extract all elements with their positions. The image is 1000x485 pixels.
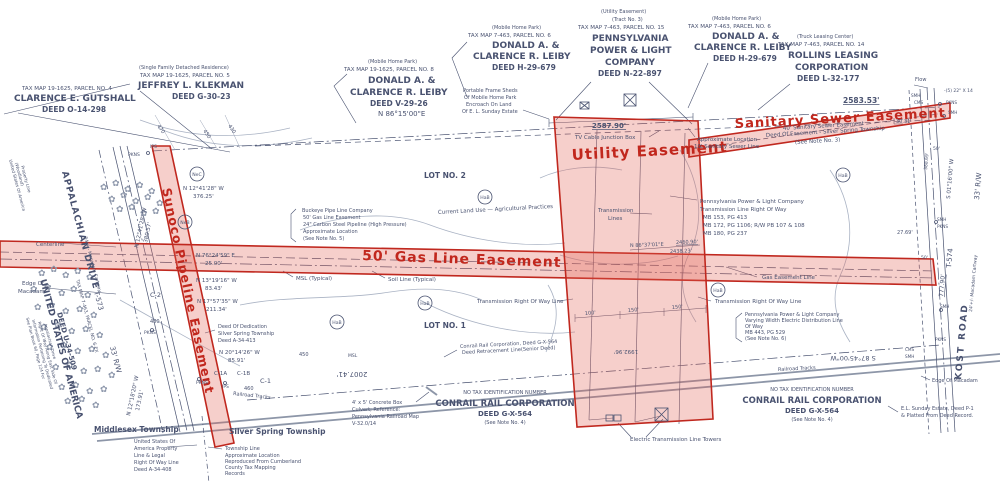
map-label: PKNS	[935, 337, 946, 342]
map-label: 4' x 5' Concrete Box	[352, 400, 402, 406]
map-label: Deed Of Dedication	[218, 324, 267, 330]
map-label: Of E. L. Sunday Estate	[462, 109, 518, 115]
tree-symbol-icon: ✿	[62, 271, 70, 281]
map-label: 33' R/W	[108, 345, 123, 373]
map-label: Right Of Way Line	[134, 460, 179, 466]
map-label: DONALD A. &	[368, 76, 436, 86]
map-label: E.L. Sunday Estate, Deed P-1	[901, 406, 974, 412]
soil-label: HaB	[713, 288, 722, 294]
map-label: PENNSYLVANIA	[592, 34, 669, 44]
map-label: TAX MAP 7-463, PARCEL NO. 15	[577, 25, 665, 31]
map-label: Railroad Tracks	[778, 365, 816, 373]
map-label: TAX MAP 19-1625, PARCEL NO. 4	[21, 86, 112, 92]
map-label: IPS	[222, 384, 229, 390]
map-label: TAX MAP 19-1625, PARCEL NO. 8	[343, 67, 434, 73]
map-label: Township Line	[224, 446, 260, 452]
map-label: CONRAIL RAIL CORPORATION	[742, 396, 881, 406]
map-label: 50'	[921, 255, 928, 261]
map-label: 100'	[585, 310, 596, 317]
map-label: 2587.90'	[592, 122, 626, 130]
tree-symbol-icon: ✿	[58, 289, 66, 299]
township-line	[202, 416, 209, 483]
map-label: 85.91'	[228, 358, 245, 364]
tree-symbol-icon: ✿	[100, 385, 108, 395]
plat-canvas: NeCNeBHaBHaBHaBHaBHaB ✿✿✿✿✿✿✿✿✿✿✿✿✿✿✿✿✿✿…	[0, 0, 1000, 485]
map-label: TAX MAP 7-463, PARCEL NO. 6	[687, 24, 771, 30]
map-label: DONALD A. &	[712, 32, 780, 42]
map-label: Approximate Location	[303, 229, 358, 235]
map-label: 27.69'	[897, 230, 913, 236]
map-label: Macadam	[18, 289, 45, 295]
map-label: MB 153, PG 413	[703, 215, 748, 221]
boundary-lines	[0, 88, 955, 483]
map-label: United States Of	[134, 439, 175, 445]
map-label: (See Note No. 4)	[791, 417, 832, 423]
map-label: MSL (Typical)	[296, 276, 332, 282]
tree-symbol-icon: ✿	[80, 367, 88, 377]
map-label: 450	[201, 129, 211, 140]
map-label: PKNS	[144, 330, 156, 336]
tree-symbol-icon: ✿	[50, 265, 58, 275]
map-label: CLARENCE R. LEIBY	[350, 88, 448, 98]
map-label: CMS	[905, 347, 915, 352]
map-label: IPS	[150, 144, 157, 150]
soil-label: NeC	[192, 172, 201, 178]
map-label: TV Cable Junction Box	[574, 135, 636, 141]
map-label: N 12°41'28" W	[183, 186, 224, 192]
map-label: 2438.23'	[670, 248, 692, 255]
map-label: Silver Spring Township	[229, 427, 326, 436]
map-label: 30.31	[896, 119, 910, 125]
map-label: Middlesex Township	[94, 425, 179, 434]
map-label: Deed A-34-413	[218, 338, 256, 344]
map-label: Culvert; Reference:	[352, 407, 401, 413]
map-label: Portable Frame Sheds	[463, 88, 518, 94]
map-label: ROLLINS LEASING	[788, 51, 878, 61]
map-label: MSL	[348, 353, 358, 359]
map-label: S 01°16'00" W	[946, 158, 956, 199]
map-label: C-1B	[237, 371, 250, 377]
map-label: Silver Spring Township	[218, 331, 274, 337]
map-label: 50'	[933, 146, 940, 152]
map-label: Line & Legal	[134, 453, 165, 459]
tree-symbol-icon: ✿	[112, 179, 120, 189]
map-label: Records	[225, 471, 245, 477]
map-label: NO TAX IDENTIFICATION NUMBER	[463, 390, 547, 396]
map-label: N 76°24'59" E	[196, 253, 235, 259]
map-label: CORPORATION	[795, 63, 868, 73]
tree-symbol-icon: ✿	[120, 191, 128, 201]
map-label: N 20°14'26" W	[219, 350, 260, 356]
map-label: N 86°37'01"E	[630, 242, 664, 249]
tree-symbol-icon: ✿	[144, 193, 152, 203]
tree-symbol-icon: ✿	[34, 303, 42, 313]
map-label: N 13°19'16" W	[196, 278, 237, 284]
map-label: (Mobile Home Park)	[712, 16, 761, 22]
map-label: (See Note No. 5)	[303, 236, 344, 242]
map-label: Pennsylvania Railroad Map	[352, 414, 419, 420]
map-label: Edge Of Macadam	[932, 378, 978, 384]
map-label: Deed A-34-408	[134, 467, 172, 473]
map-label: 777.90'	[938, 274, 947, 298]
map-label: 450	[299, 352, 309, 358]
map-label: DEED G-X-564	[478, 410, 532, 418]
map-label: -(5) 22" X 14	[944, 88, 973, 94]
map-label: SMH	[905, 354, 914, 359]
map-label: C-1	[260, 377, 271, 385]
map-label: 480	[150, 319, 160, 325]
map-label: KOST ROAD	[954, 303, 971, 380]
map-label: DEED G-X-564	[785, 407, 839, 415]
map-label: Transmission Line Right Of Way	[699, 207, 787, 213]
map-label: DEED G-30-23	[172, 92, 231, 101]
map-label: TAX MAP 7-463, PARCEL NO. 14	[777, 42, 865, 48]
map-label: 150'	[628, 307, 639, 314]
map-label: N 86°15'00"E	[378, 110, 425, 118]
map-label: PKNS	[946, 100, 957, 105]
map-label: 1992.96'	[614, 348, 638, 354]
tree-symbol-icon: ✿	[38, 269, 46, 279]
map-label: SMH	[940, 304, 949, 309]
map-label: Current Land Use — Agricultural Practice…	[438, 204, 554, 216]
map-label: V-32.0/14	[352, 421, 376, 427]
soil-label: HaB	[838, 173, 847, 179]
tree-symbol-icon: ✿	[92, 401, 100, 411]
map-label: DEED N-22-897	[598, 69, 662, 78]
map-label: SMH	[911, 93, 920, 98]
map-label: LOT NO. 2	[424, 171, 466, 180]
map-label: SMH	[948, 110, 957, 115]
map-labels: TAX MAP 19-1625, PARCEL NO. 4CLARENCE E.…	[8, 9, 983, 477]
map-label: NO TAX IDENTIFICATION NUMBER	[770, 387, 854, 393]
map-label: DONALD A. &	[492, 41, 560, 51]
map-label: Edge Of	[22, 281, 45, 287]
map-label: 376.25'	[193, 194, 214, 200]
map-label: Approximate Location	[697, 137, 758, 143]
map-label: 2460.90'	[676, 239, 698, 246]
tree-symbol-icon: ✿	[58, 383, 66, 393]
tree-symbol-icon: ✿	[74, 267, 82, 277]
map-label: CMS	[914, 100, 924, 105]
soil-label: HaB	[480, 195, 489, 201]
map-label: MB 172, PG 1106; R/W PB 107 & 108	[703, 223, 805, 229]
map-label: 50' Gas Line Easement	[303, 215, 360, 221]
map-label: PKNS	[128, 152, 140, 158]
map-label: (Single Family Detached Residence)	[139, 65, 229, 71]
map-label: Pennsylvania Power & Light Company	[700, 199, 805, 205]
survey-plat-map: NeCNeBHaBHaBHaBHaBHaB ✿✿✿✿✿✿✿✿✿✿✿✿✿✿✿✿✿✿…	[0, 0, 1000, 485]
map-label: & Platted From Deed Record.	[901, 413, 974, 419]
tree-symbol-icon: ✿	[100, 183, 108, 193]
map-label: Buckeye Pipe Line Company	[302, 208, 373, 214]
map-label: TAX MAP 19-1625, PARCEL NO. 5	[139, 73, 230, 79]
map-label: Gas Easement Line	[762, 275, 816, 281]
tree-symbol-icon: ✿	[96, 331, 104, 341]
map-label: DEED L-32-177	[797, 74, 859, 83]
map-label: Centerline	[36, 242, 65, 248]
map-label: 25.00'	[205, 261, 222, 267]
map-label: (Tract No. 3)	[612, 17, 643, 23]
map-label: 430	[226, 124, 236, 135]
map-label: (Truck Leasing Center)	[797, 34, 853, 40]
map-label: Of Mobile Home Park	[464, 95, 517, 101]
map-label: Transmission	[597, 208, 634, 214]
transmission-tower-icon	[624, 94, 636, 106]
map-label: SMH	[937, 217, 946, 222]
soil-label: HaB	[332, 320, 341, 326]
map-label: DEED O-14-298	[42, 105, 106, 114]
soil-label: HaB	[420, 301, 429, 307]
map-label: C-2	[150, 291, 161, 299]
tree-symbol-icon: ✿	[94, 365, 102, 375]
map-label: COMPANY	[605, 58, 655, 68]
map-label: 83.43'	[205, 286, 222, 292]
map-label: Transmission Right Of Way Line	[714, 299, 802, 305]
map-label: T-574	[945, 247, 955, 269]
map-label: (Mobile Home Park)	[368, 59, 417, 65]
map-label: 150'	[672, 304, 683, 311]
map-label: C-1A	[214, 371, 227, 377]
map-label: PKNS	[937, 224, 948, 229]
map-label: LOT NO. 1	[424, 321, 466, 330]
map-label: (See Note No. 6)	[745, 336, 786, 342]
tree-symbol-icon: ✿	[86, 387, 94, 397]
map-label: (Mobile Home Park)	[492, 25, 541, 31]
tree-symbol-icon: ✿	[128, 203, 136, 213]
tree-symbol-icon: ✿	[136, 181, 144, 191]
map-label: DEED H-29-679	[713, 54, 777, 63]
map-label: Transmission Right Of Way Line	[476, 299, 564, 305]
map-label: 10' Sanitary Sewer Line	[694, 144, 760, 150]
map-label: DEED V-29-26	[370, 99, 428, 108]
map-label: PKNS	[196, 380, 208, 386]
map-label: 2007.41'	[336, 370, 367, 378]
map-label: POWER & LIGHT	[590, 46, 672, 56]
map-label: TAX MAP 7-463, PARCEL NO. 6	[467, 33, 551, 39]
map-label: Encroach On Land	[466, 102, 512, 108]
map-label: Flow	[915, 77, 926, 83]
tree-symbol-icon: ✿	[90, 311, 98, 321]
map-label: CONRAIL RAIL CORPORATION	[435, 399, 574, 409]
map-label: CLARENCE E. GUTSHALL	[14, 94, 136, 104]
map-label: 460	[244, 386, 254, 392]
map-label: JEFFREY L. KLEKMAN	[137, 81, 244, 91]
map-label: (Utility Easement)	[601, 9, 646, 15]
map-label: S 87°45'00"W	[830, 354, 876, 362]
map-label: MB 180, PG 237	[703, 231, 748, 237]
tree-symbol-icon: ✿	[152, 207, 160, 217]
tree-symbol-icon: ✿	[108, 195, 116, 205]
map-label: America Property	[134, 446, 177, 452]
map-label: 470	[155, 124, 165, 135]
map-label: Soil Line (Typical)	[388, 277, 436, 283]
map-label: 211.34'	[206, 307, 227, 313]
map-label: DEED H-29-679	[492, 63, 556, 72]
map-label: 33' R/W	[973, 172, 983, 200]
map-label: 2583.53'	[843, 96, 879, 105]
map-label: N 17°57'35" W	[197, 299, 238, 305]
map-label: CLARENCE R. LEIBY	[473, 52, 571, 62]
junction-box-icon	[580, 102, 589, 109]
map-label: Lines	[608, 216, 622, 222]
map-label: Electric Transmission Line Towers	[630, 437, 722, 443]
tree-symbol-icon: ✿	[102, 351, 110, 361]
map-label: (See Note No. 4)	[484, 420, 525, 426]
tree-symbol-icon: ✿	[116, 205, 124, 215]
map-label: 24" Carbon Steel Pipeline (High Pressure…	[303, 222, 407, 228]
map-label: 24'+/- Macadam Cartway	[968, 254, 979, 312]
